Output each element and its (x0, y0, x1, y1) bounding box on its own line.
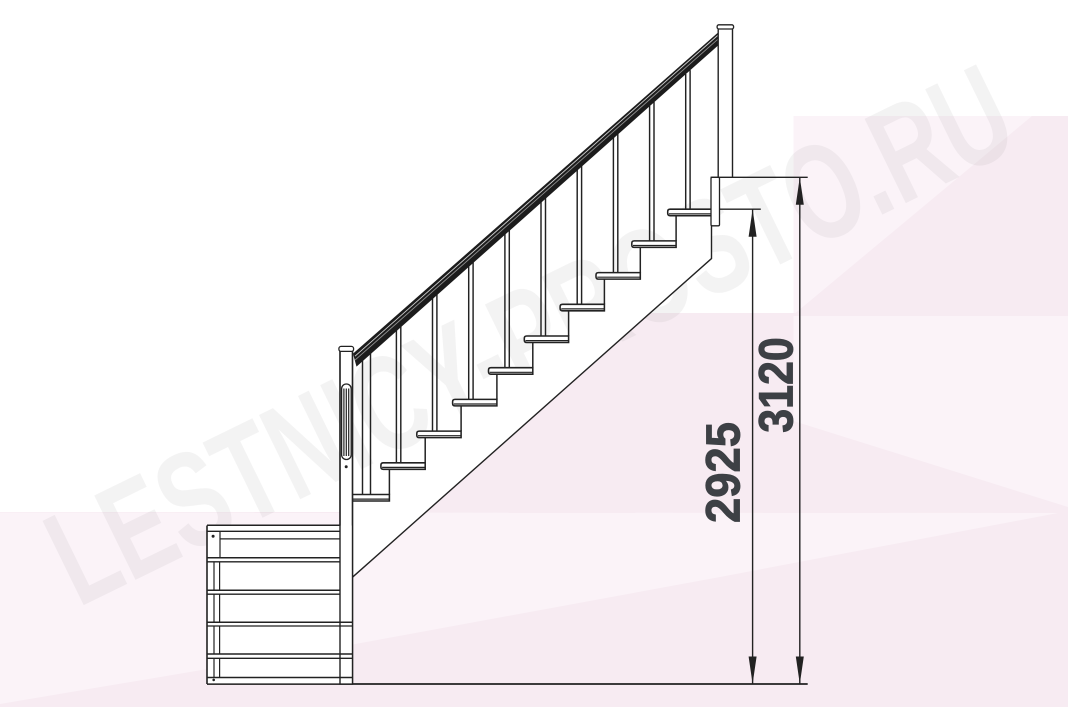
svg-text:3120: 3120 (750, 337, 803, 433)
svg-text:2925: 2925 (698, 422, 751, 523)
